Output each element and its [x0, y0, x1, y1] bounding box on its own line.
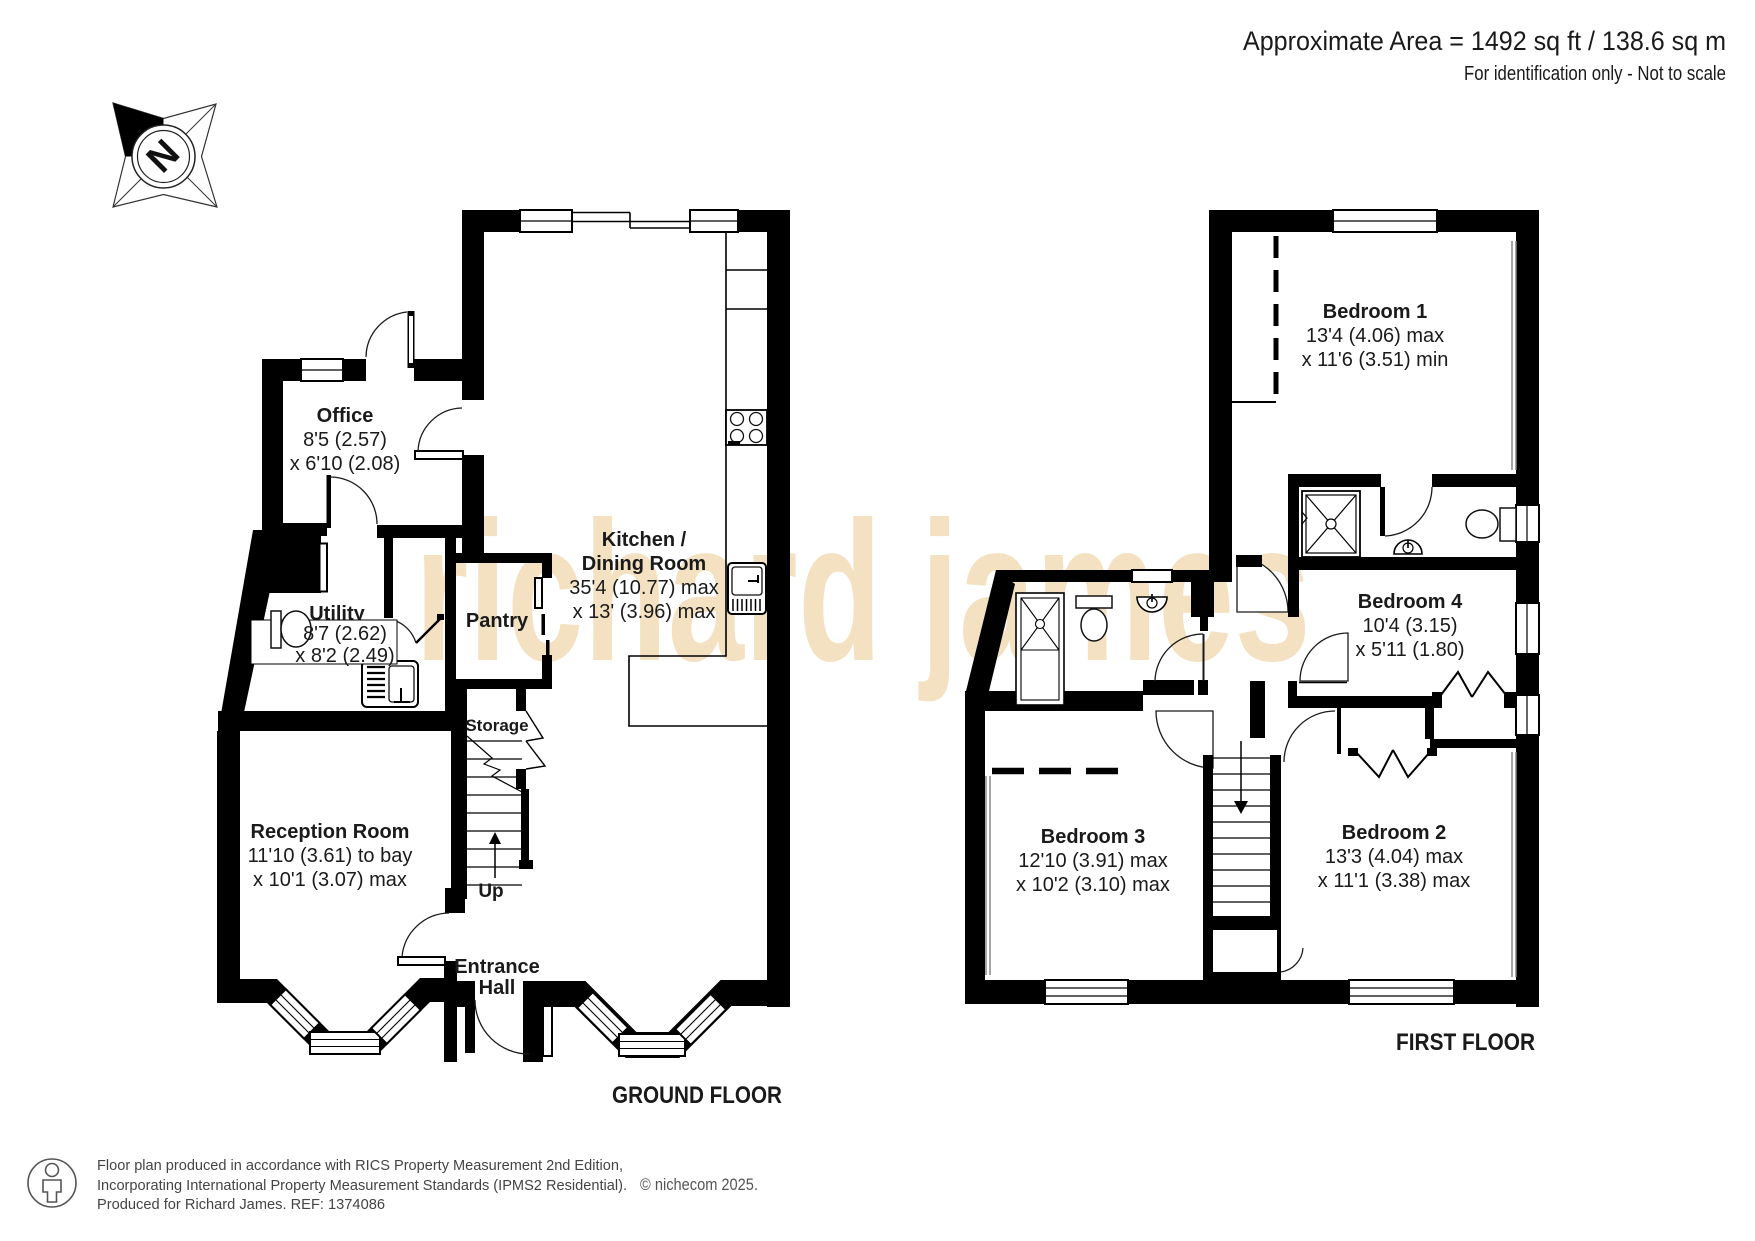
svg-text:GROUND FLOOR: GROUND FLOOR [612, 1082, 782, 1109]
svg-text:Kitchen /: Kitchen / [602, 529, 687, 551]
svg-text:Up: Up [478, 881, 503, 902]
svg-text:Entrance: Entrance [454, 956, 540, 978]
svg-text:13'4 (4.06) max: 13'4 (4.06) max [1306, 325, 1444, 347]
svg-text:Incorporating International Pr: Incorporating International Property Mea… [97, 1177, 627, 1194]
svg-text:Hall: Hall [479, 977, 516, 999]
svg-text:© nichecom 2025.: © nichecom 2025. [640, 1176, 758, 1194]
svg-text:13'3 (4.04) max: 13'3 (4.04) max [1325, 846, 1463, 868]
svg-text:Produced for Richard James.: Produced for Richard James. REF: 1374086 [97, 1196, 385, 1213]
svg-text:x 6'10 (2.08): x 6'10 (2.08) [290, 453, 401, 475]
svg-text:Storage: Storage [465, 716, 528, 735]
svg-text:Approximate Area = 1492 sq ft: Approximate Area = 1492 sq ft / 138.6 sq… [1243, 26, 1726, 56]
svg-text:Floor plan produced in accorda: Floor plan produced in accordance with R… [97, 1157, 623, 1174]
svg-text:x 11'1 (3.38) max: x 11'1 (3.38) max [1318, 870, 1470, 892]
svg-text:11'10 (3.61) to bay: 11'10 (3.61) to bay [248, 845, 413, 867]
svg-text:x 11'6 (3.51) min: x 11'6 (3.51) min [1302, 349, 1449, 371]
svg-text:Bedroom 4: Bedroom 4 [1358, 591, 1463, 613]
svg-text:Dining Room: Dining Room [582, 553, 706, 575]
svg-text:12'10 (3.91) max: 12'10 (3.91) max [1018, 850, 1167, 872]
svg-text:35'4 (10.77) max: 35'4 (10.77) max [569, 577, 718, 599]
svg-text:Pantry: Pantry [466, 610, 529, 632]
svg-text:For identification only - Not: For identification only - Not to scale [1464, 62, 1726, 85]
svg-text:x 10'2 (3.10) max: x 10'2 (3.10) max [1016, 874, 1170, 896]
svg-text:x 13' (3.96) max: x 13' (3.96) max [573, 601, 716, 623]
svg-text:Bedroom 3: Bedroom 3 [1041, 826, 1145, 848]
svg-text:Reception Room: Reception Room [251, 821, 410, 843]
svg-text:8'7 (2.62): 8'7 (2.62) [303, 623, 387, 645]
svg-text:x 10'1 (3.07) max: x 10'1 (3.07) max [253, 869, 407, 891]
svg-text:Bedroom 2: Bedroom 2 [1342, 822, 1446, 844]
svg-text:FIRST FLOOR: FIRST FLOOR [1396, 1029, 1535, 1056]
svg-text:x 5'11 (1.80): x 5'11 (1.80) [1355, 639, 1464, 661]
svg-text:Bedroom 1: Bedroom 1 [1323, 301, 1427, 323]
svg-text:x 8'2 (2.49): x 8'2 (2.49) [295, 645, 394, 667]
svg-text:Office: Office [317, 405, 374, 427]
svg-text:10'4 (3.15): 10'4 (3.15) [1363, 615, 1458, 637]
svg-text:8'5 (2.57): 8'5 (2.57) [303, 429, 387, 451]
